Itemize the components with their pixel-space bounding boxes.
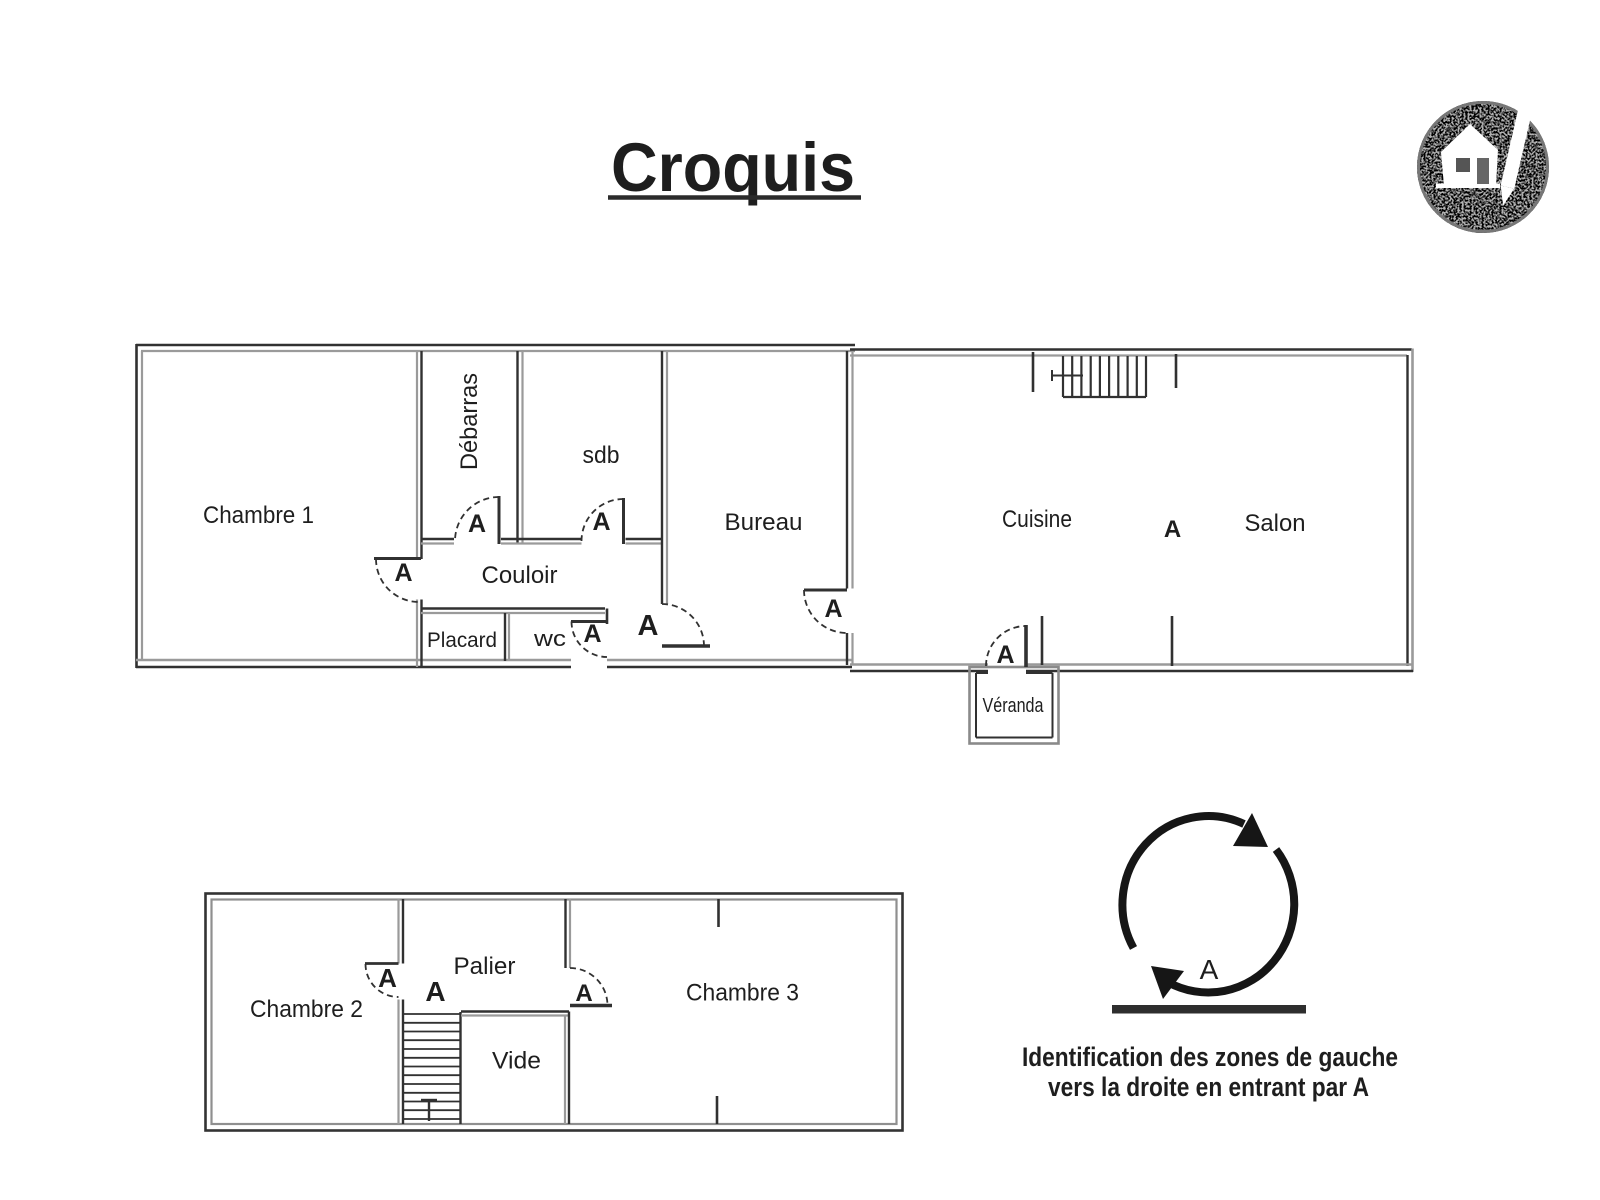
svg-text:A: A: [824, 595, 842, 623]
svg-text:Chambre 1: Chambre 1: [203, 502, 314, 529]
svg-text:Palier: Palier: [454, 953, 516, 980]
svg-text:wc: wc: [533, 626, 566, 651]
svg-text:A: A: [378, 963, 397, 993]
svg-text:Véranda: Véranda: [983, 695, 1045, 717]
svg-text:Placard: Placard: [427, 629, 497, 652]
svg-text:Couloir: Couloir: [482, 562, 558, 589]
svg-text:A: A: [1200, 954, 1219, 985]
svg-text:Débarras: Débarras: [456, 373, 483, 470]
svg-text:Cuisine: Cuisine: [1002, 506, 1072, 533]
svg-text:Vide: Vide: [492, 1048, 541, 1075]
svg-text:Croquis: Croquis: [611, 129, 855, 206]
svg-text:A: A: [425, 976, 445, 1007]
svg-text:A: A: [996, 641, 1014, 669]
svg-text:A: A: [638, 610, 659, 642]
svg-text:A: A: [1164, 516, 1181, 543]
svg-text:A: A: [468, 510, 486, 538]
svg-text:A: A: [394, 559, 412, 587]
svg-text:Bureau: Bureau: [725, 509, 803, 536]
svg-text:A: A: [575, 980, 592, 1007]
svg-text:vers la droite en entrant par: vers la droite en entrant par A: [1048, 1072, 1369, 1102]
svg-text:A: A: [592, 508, 610, 536]
svg-text:Chambre 3: Chambre 3: [686, 980, 799, 1007]
svg-text:sdb: sdb: [583, 442, 620, 469]
svg-text:Chambre 2: Chambre 2: [250, 996, 363, 1023]
svg-text:Salon: Salon: [1245, 510, 1306, 537]
svg-text:Identification des zones de ga: Identification des zones de gauche: [1022, 1042, 1398, 1072]
svg-text:A: A: [583, 620, 601, 648]
